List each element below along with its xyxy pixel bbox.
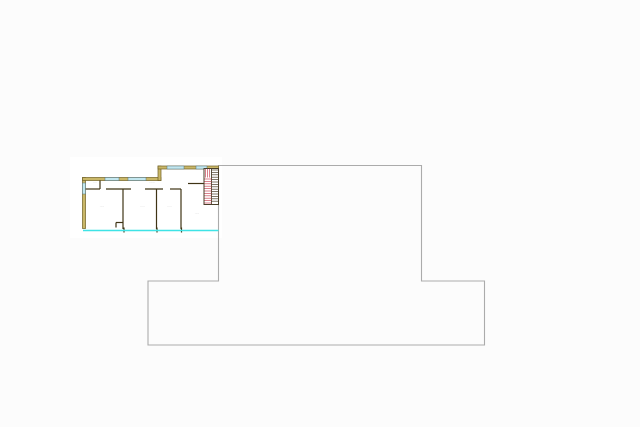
window-top-1 (105, 178, 119, 181)
floorplan-drawing: ······························· (0, 0, 640, 427)
window-top-2 (128, 178, 146, 181)
label-room-1: ····· (100, 205, 105, 209)
label-hall: ······· (149, 180, 156, 184)
label-room-2: ····· (140, 205, 145, 209)
label-room-small: ···· (93, 181, 97, 185)
label-room-3: ····· (167, 205, 172, 209)
window-left (83, 183, 86, 194)
drawing-canvas: ······························· (0, 0, 640, 427)
label-room-4: ····· (195, 212, 200, 216)
window-top-3 (167, 166, 184, 169)
